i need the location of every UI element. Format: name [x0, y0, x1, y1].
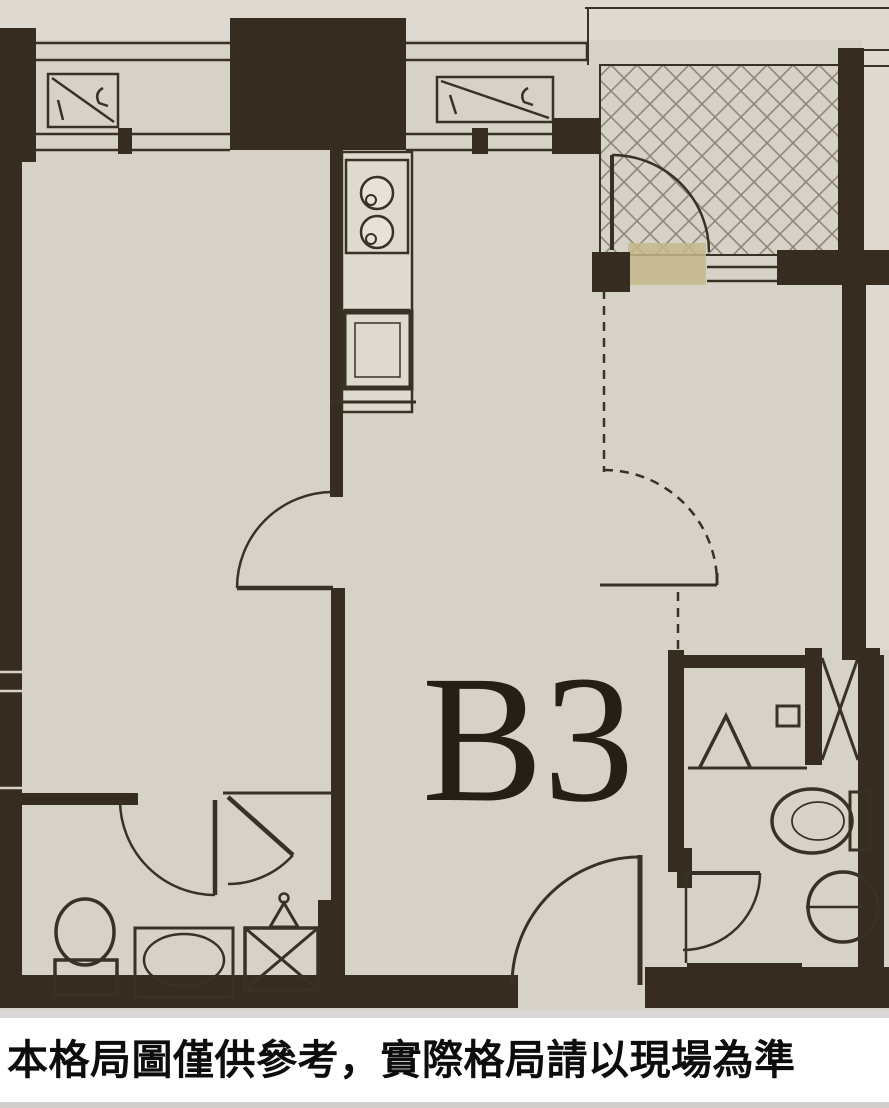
pillar-entry — [592, 252, 630, 292]
wall-bath2-bottom — [687, 963, 802, 995]
kitchen-counter — [331, 152, 416, 412]
wall-right-upper — [838, 48, 864, 285]
shaft-bar-left — [805, 648, 822, 765]
window-mullion-mid — [472, 128, 488, 154]
entry-threshold — [628, 243, 706, 285]
shaft-bar-right — [858, 648, 880, 765]
wall-utility-right — [318, 900, 345, 1008]
wall-bath2-stub — [677, 848, 692, 888]
wall-bath2-left — [668, 650, 684, 872]
outside-right-strip — [862, 0, 889, 650]
screenshot-root: B3 本格局圖僅供參考，實際格局請以現場為準 — [0, 0, 889, 1108]
window-mullion-left — [118, 128, 132, 154]
wall-bath2-top — [684, 655, 809, 668]
stove-burner-top — [361, 177, 393, 209]
outside-top-strip — [0, 0, 889, 40]
unit-label: B3 — [422, 639, 634, 840]
entry-tile-hatch — [600, 65, 840, 255]
wall-left — [0, 28, 22, 1008]
floor-plan: B3 — [0, 0, 889, 1010]
pillar-mid-top — [552, 118, 600, 154]
bath1-door-hinge — [126, 794, 136, 804]
wall-top-block — [230, 18, 406, 150]
wall-right-mid — [842, 283, 866, 660]
pillar-top-left — [0, 28, 36, 162]
disclaimer-text: 本格局圖僅供參考，實際格局請以現場為準 — [0, 1040, 796, 1081]
wall-entry-right — [777, 250, 889, 285]
caption-bar: 本格局圖僅供參考，實際格局請以現場為準 — [0, 1010, 889, 1108]
stove-burner-bottom — [361, 216, 393, 248]
